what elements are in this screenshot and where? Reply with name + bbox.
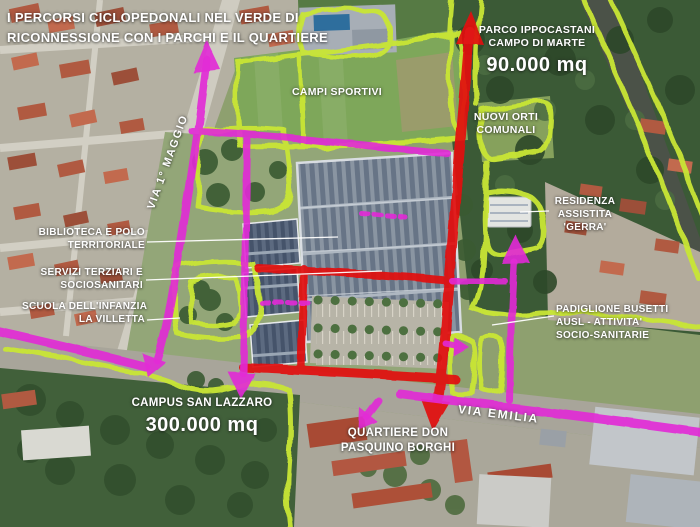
residenza-line3: 'GERRA' (548, 222, 622, 235)
padiglione-line2: AUSL - ATTIVITA' (556, 317, 668, 330)
biblioteca-line1: BIBLIOTECA E POLO (38, 227, 145, 240)
quartiere-line2: PASQUINO BORGHI (330, 441, 466, 456)
orti-line2: COMUNALI (455, 124, 557, 137)
servizi-line2: SOCIOSANITARI (33, 280, 143, 293)
annex-buildings (243, 219, 307, 367)
parco-line2: CAMPO DI MARTE (452, 37, 622, 50)
label-scuola: SCUOLA DELL'INFANZIA LA VILLETTA (22, 301, 145, 327)
residenza-line2: ASSISTITA (548, 209, 622, 222)
orti-line1: NUOVI ORTI (455, 111, 557, 124)
residenza-line1: RESIDENZA (548, 196, 622, 209)
biblioteca-line2: TERRITORIALE (38, 240, 145, 253)
label-nuovi-orti: NUOVI ORTI COMUNALI (455, 111, 557, 138)
masterplan-map: I PERCORSI CICLOPEDONALI NEL VERDE DI RI… (0, 0, 700, 527)
label-biblioteca: BIBLIOTECA E POLO TERRITORIALE (38, 227, 145, 253)
label-quartiere: QUARTIERE DON PASQUINO BORGHI (330, 426, 466, 455)
quartiere-line1: QUARTIERE DON (330, 426, 466, 441)
map-title: I PERCORSI CICLOPEDONALI NEL VERDE DI RI… (7, 8, 328, 47)
padiglione-line3: SOCIO-SANITARIE (556, 330, 668, 343)
campus-line1: CAMPUS SAN LAZZARO (118, 396, 286, 411)
label-parco-ippocastani: PARCO IPPOCASTANI CAMPO DI MARTE 90.000 … (452, 24, 622, 78)
parco-line1: PARCO IPPOCASTANI (452, 24, 622, 37)
campus-area-value: 300.000 mq (118, 413, 286, 439)
label-padiglione: PADIGLIONE BUSETTI AUSL - ATTIVITA' SOCI… (556, 304, 668, 342)
title-line1: I PERCORSI CICLOPEDONALI NEL VERDE DI (7, 8, 328, 28)
label-servizi: SERVIZI TERZIARI E SOCIOSANITARI (33, 267, 143, 293)
parco-area-value: 90.000 mq (452, 53, 622, 79)
title-line2: RICONNESSIONE CON I PARCHI E IL QUARTIER… (7, 28, 328, 48)
label-residenza: RESIDENZA ASSISTITA 'GERRA' (548, 196, 622, 234)
label-campi-sportivi: CAMPI SPORTIVI (292, 86, 382, 99)
label-campus: CAMPUS SAN LAZZARO 300.000 mq (118, 396, 286, 438)
scuola-line2: LA VILLETTA (22, 314, 145, 327)
scuola-line1: SCUOLA DELL'INFANZIA (22, 301, 145, 314)
parking-lot (310, 296, 449, 369)
padiglione-line1: PADIGLIONE BUSETTI (556, 304, 668, 317)
servizi-line1: SERVIZI TERZIARI E (33, 267, 143, 280)
